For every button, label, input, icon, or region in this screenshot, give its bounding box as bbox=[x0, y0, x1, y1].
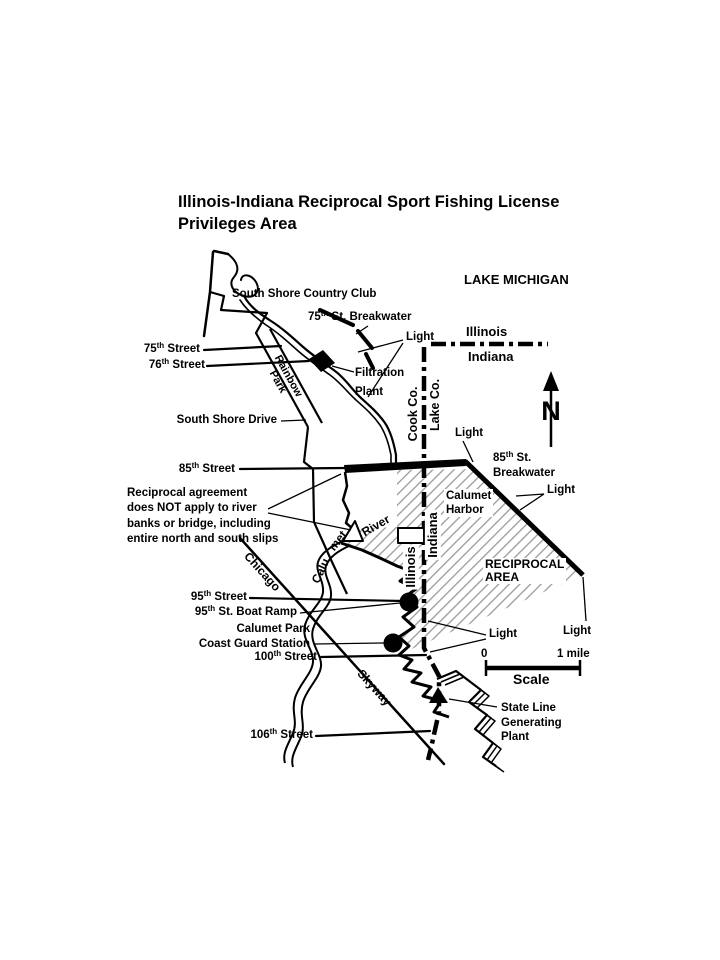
generating-plant-label: State Line Generating Plant bbox=[501, 701, 562, 745]
lake-michigan-label: LAKE MICHIGAN bbox=[464, 272, 569, 288]
generating-plant-marker bbox=[429, 687, 448, 703]
street-100th-label: 100th Street bbox=[254, 650, 317, 664]
generating-plant-outline bbox=[437, 671, 504, 772]
breakwater-85th-label: 85th St. Breakwater bbox=[493, 451, 555, 481]
street-76th-label: 76th Street bbox=[149, 358, 205, 372]
north-arrow-letter: N bbox=[541, 396, 561, 426]
note-pointers bbox=[268, 474, 351, 530]
light-label-1: Light bbox=[406, 330, 434, 344]
street-75th-label: 75th Street bbox=[144, 342, 200, 356]
street-106th-label: 106th Street bbox=[250, 728, 313, 742]
indiana-vertical-label: Indiana bbox=[425, 510, 441, 560]
boat-ramp-label: 95th St. Boat Ramp bbox=[195, 605, 297, 619]
coast-guard-label: Calumet Park Coast Guard Station bbox=[199, 622, 310, 652]
light-2-pointer bbox=[463, 441, 473, 462]
light-5-pointer bbox=[583, 577, 586, 621]
south-shore-drive-label: South Shore Drive bbox=[177, 413, 277, 427]
light-label-2: Light bbox=[455, 426, 483, 440]
light-label-3: Light bbox=[547, 483, 575, 497]
boat-ramp-marker bbox=[400, 593, 419, 612]
filtration-plant-label: Filtration Plant bbox=[355, 364, 404, 402]
scale-max-label: 1 mile bbox=[557, 647, 590, 661]
street-85th-line bbox=[240, 468, 345, 469]
country-club-label: South Shore Country Club bbox=[232, 287, 376, 301]
street-95th-line bbox=[250, 598, 404, 601]
street-106th-line bbox=[316, 731, 430, 736]
coast-guard-pointer bbox=[315, 643, 384, 644]
north-arrow: N bbox=[541, 371, 561, 447]
map-title-line1: Illinois-Indiana Reciprocal Sport Fishin… bbox=[178, 191, 559, 213]
map-linework: N bbox=[0, 0, 720, 960]
map-page: N Illinois-Indiana Reciprocal Sport Fish… bbox=[0, 0, 720, 960]
breakwater-75th-label: 75th St. Breakwater bbox=[308, 310, 411, 324]
street-100th-line bbox=[321, 655, 426, 657]
street-95th-label: 95th Street bbox=[191, 590, 247, 604]
reciprocal-area-label: RECIPROCAL AREA bbox=[483, 558, 566, 584]
map-title: Illinois-Indiana Reciprocal Sport Fishin… bbox=[178, 191, 559, 235]
light-3-pointers bbox=[516, 494, 544, 510]
scale-title-label: Scale bbox=[513, 671, 550, 689]
street-85th-label: 85th Street bbox=[179, 462, 235, 476]
coast-guard-marker bbox=[384, 634, 403, 653]
map-title-line2: Privileges Area bbox=[178, 213, 559, 235]
south-shore-drive-pointer bbox=[281, 420, 306, 421]
illinois-vertical-label: Illinois bbox=[403, 544, 419, 589]
calumet-harbor-label: Calumet Harbor bbox=[444, 489, 493, 517]
street-75th-line bbox=[204, 346, 281, 350]
indiana-south-label: Indiana bbox=[468, 349, 514, 365]
street-76th-line bbox=[207, 361, 309, 366]
reciprocal-note: Reciprocal agreement does NOT apply to r… bbox=[127, 486, 278, 547]
cook-county-label: Cook Co. bbox=[406, 387, 422, 442]
light-label-5: Light bbox=[563, 624, 591, 638]
scale-zero-label: 0 bbox=[481, 647, 487, 661]
illinois-north-label: Illinois bbox=[466, 324, 507, 340]
light-label-4: Light bbox=[489, 627, 517, 641]
lake-county-label: Lake Co. bbox=[428, 379, 444, 431]
